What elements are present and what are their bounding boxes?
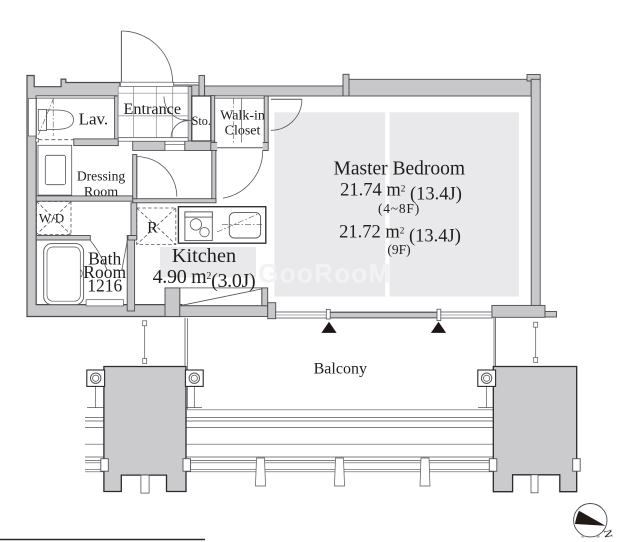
svg-text:(4~8F): (4~8F) (378, 201, 420, 216)
svg-text:(9F): (9F) (387, 242, 410, 257)
svg-text:Room: Room (84, 185, 118, 200)
svg-text:Balcony: Balcony (314, 361, 367, 378)
svg-text:W/D: W/D (39, 211, 64, 226)
svg-text:R: R (147, 220, 158, 237)
svg-text:Master Bedroom: Master Bedroom (333, 158, 465, 179)
svg-text:Dressing: Dressing (77, 169, 126, 184)
svg-text:GooRooM: GooRooM (258, 259, 392, 289)
svg-text:1216: 1216 (87, 276, 122, 296)
svg-text:Closet: Closet (225, 123, 261, 138)
svg-text:Sto.: Sto. (192, 114, 211, 128)
svg-text:Lav.: Lav. (79, 110, 109, 129)
svg-text:Walk-in: Walk-in (220, 109, 265, 124)
svg-text:Kitchen: Kitchen (172, 245, 236, 267)
svg-text:Entrance: Entrance (124, 100, 182, 118)
